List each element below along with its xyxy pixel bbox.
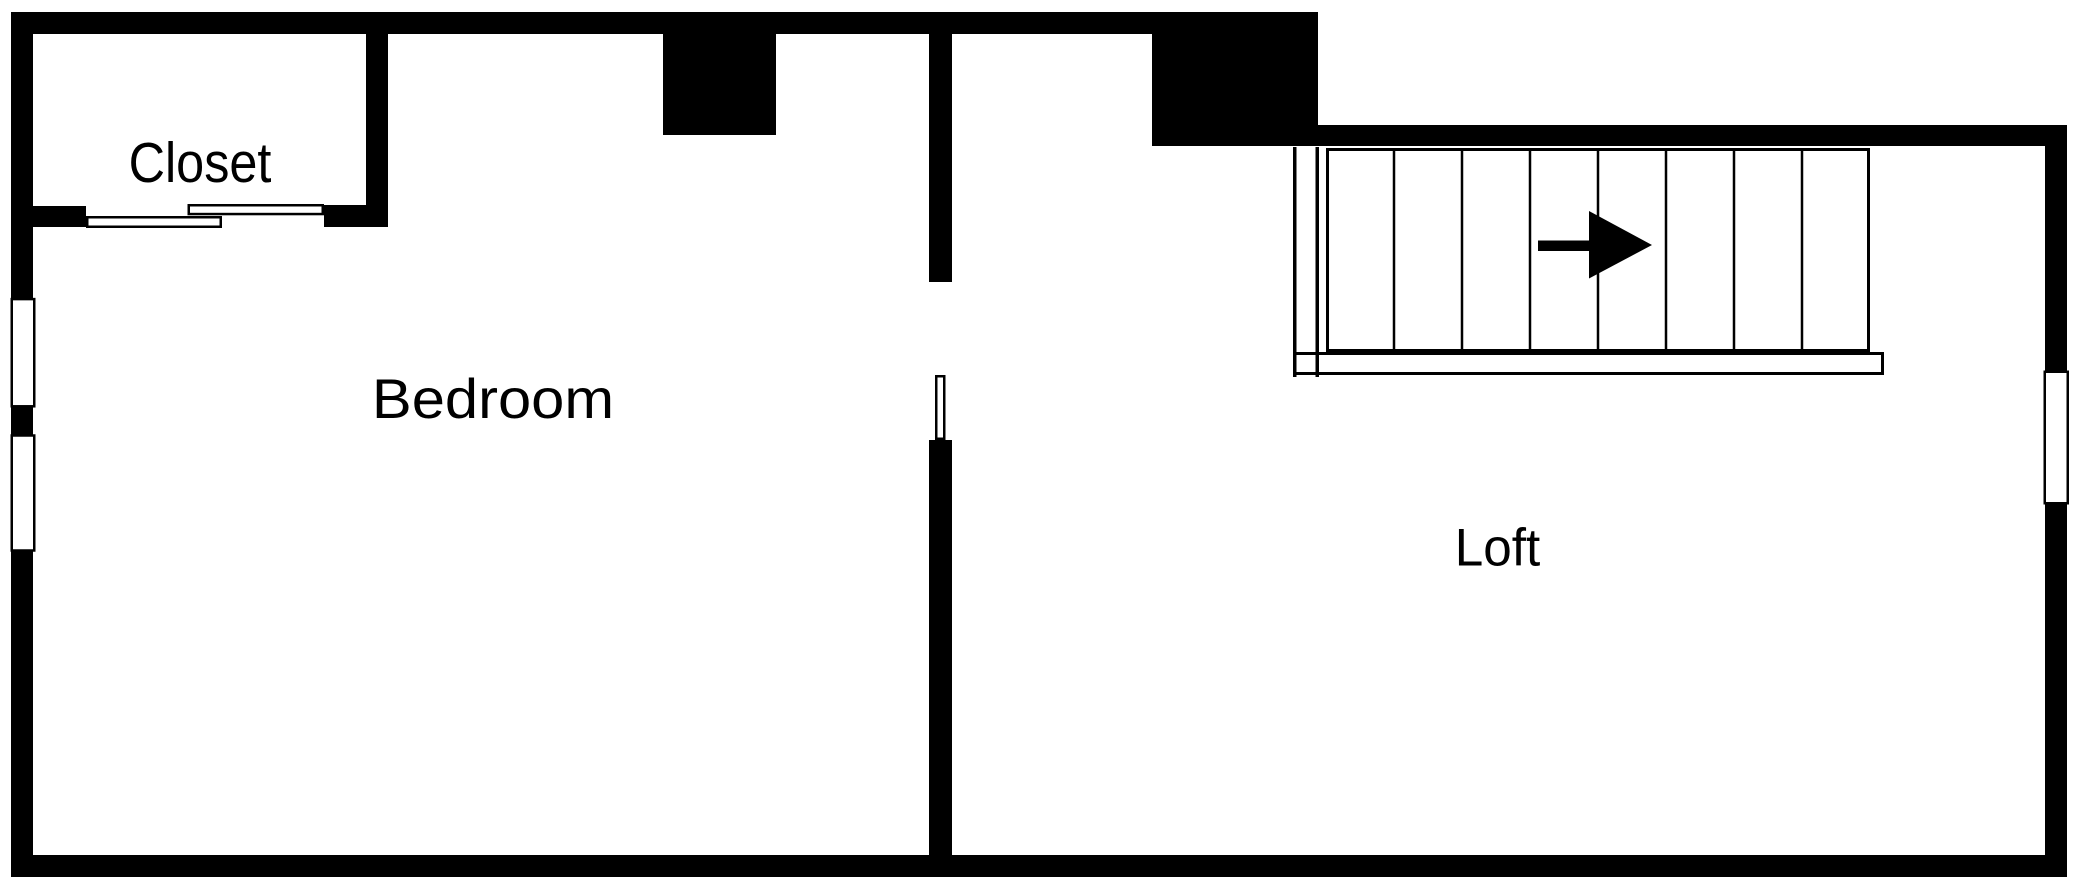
svg-text:Loft: Loft [1455, 519, 1541, 578]
svg-text:Bedroom: Bedroom [372, 369, 614, 431]
svg-text:Closet: Closet [129, 131, 272, 195]
